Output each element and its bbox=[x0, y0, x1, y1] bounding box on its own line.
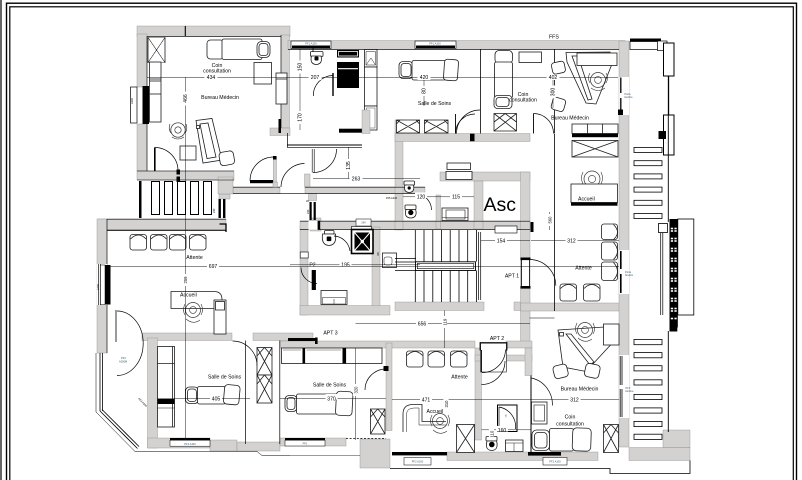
svg-text:FFS: FFS bbox=[549, 35, 559, 41]
svg-text:312: 312 bbox=[570, 397, 579, 403]
svg-text:656: 656 bbox=[418, 322, 427, 328]
svg-text:fenêtre: fenêtre bbox=[625, 273, 634, 277]
svg-text:fenêtre: fenêtre bbox=[625, 95, 634, 99]
svg-text:150: 150 bbox=[298, 63, 304, 72]
svg-text:154: 154 bbox=[497, 239, 506, 245]
svg-text:Asc: Asc bbox=[484, 194, 517, 216]
svg-text:240: 240 bbox=[306, 209, 310, 214]
svg-text:APT 2: APT 2 bbox=[490, 336, 504, 342]
svg-text:F05 A100: F05 A100 bbox=[386, 196, 398, 200]
svg-text:PF1: PF1 bbox=[303, 442, 308, 446]
svg-text:115: 115 bbox=[452, 195, 460, 201]
svg-text:Salle de Soins: Salle de Soins bbox=[418, 101, 452, 107]
svg-text:240: 240 bbox=[361, 221, 366, 225]
svg-text:PF1 A100: PF1 A100 bbox=[429, 42, 441, 46]
svg-text:consultation: consultation bbox=[556, 422, 584, 428]
svg-text:310: 310 bbox=[444, 400, 449, 408]
svg-text:120: 120 bbox=[417, 195, 426, 201]
svg-text:Bureau Médecin: Bureau Médecin bbox=[551, 116, 589, 122]
svg-text:Attente: Attente bbox=[451, 375, 468, 381]
svg-text:Salle de Soins: Salle de Soins bbox=[208, 375, 242, 381]
svg-text:PF2 A100: PF2 A100 bbox=[412, 460, 424, 464]
svg-text:110: 110 bbox=[489, 430, 494, 437]
svg-text:434: 434 bbox=[207, 75, 216, 81]
svg-text:A100: A100 bbox=[130, 97, 134, 104]
svg-text:135: 135 bbox=[346, 161, 352, 170]
svg-text:APT 1: APT 1 bbox=[505, 274, 519, 280]
svg-text:471: 471 bbox=[422, 397, 431, 403]
svg-text:170: 170 bbox=[298, 113, 304, 122]
svg-text:320: 320 bbox=[353, 386, 358, 394]
svg-text:240: 240 bbox=[212, 208, 216, 213]
svg-text:APT 3: APT 3 bbox=[323, 331, 337, 337]
svg-text:259: 259 bbox=[183, 276, 188, 284]
svg-text:90: 90 bbox=[376, 252, 380, 256]
svg-text:Salle de Soins: Salle de Soins bbox=[313, 383, 347, 389]
svg-text:697: 697 bbox=[209, 264, 218, 270]
svg-text:A100: A100 bbox=[96, 283, 100, 290]
svg-text:312: 312 bbox=[567, 239, 576, 245]
svg-text:PF2: PF2 bbox=[121, 356, 126, 360]
svg-text:Bureau Médecin: Bureau Médecin bbox=[561, 387, 599, 393]
svg-text:A200M: A200M bbox=[119, 359, 127, 363]
svg-text:PF1 A100: PF1 A100 bbox=[305, 42, 317, 46]
svg-text:Accueil: Accueil bbox=[578, 197, 595, 203]
svg-text:300: 300 bbox=[551, 88, 557, 97]
svg-text:80: 80 bbox=[422, 88, 428, 94]
svg-text:466: 466 bbox=[183, 94, 189, 103]
svg-text:420: 420 bbox=[420, 75, 429, 81]
svg-text:PF2 A100: PF2 A100 bbox=[549, 460, 561, 464]
svg-text:405: 405 bbox=[212, 396, 221, 402]
svg-text:Accueil: Accueil bbox=[427, 409, 444, 415]
svg-text:Coin: Coin bbox=[565, 415, 576, 421]
svg-text:263: 263 bbox=[352, 176, 361, 182]
svg-text:fenêtre: fenêtre bbox=[626, 389, 635, 393]
svg-text:195: 195 bbox=[341, 263, 350, 269]
svg-text:207: 207 bbox=[311, 75, 320, 81]
svg-text:160: 160 bbox=[498, 428, 507, 434]
svg-text:370: 370 bbox=[327, 396, 336, 402]
svg-text:PF1 A100: PF1 A100 bbox=[184, 442, 196, 446]
svg-text:consultation: consultation bbox=[203, 69, 231, 75]
svg-text:Attente: Attente bbox=[186, 255, 203, 261]
svg-text:Bureau Médecin: Bureau Médecin bbox=[201, 95, 239, 101]
svg-text:560: 560 bbox=[547, 216, 552, 224]
svg-text:Accueil: Accueil bbox=[180, 293, 197, 299]
svg-text:402: 402 bbox=[549, 75, 558, 81]
svg-text:consultation: consultation bbox=[509, 98, 537, 104]
svg-text:P2: P2 bbox=[309, 263, 315, 269]
svg-text:119: 119 bbox=[442, 318, 447, 325]
